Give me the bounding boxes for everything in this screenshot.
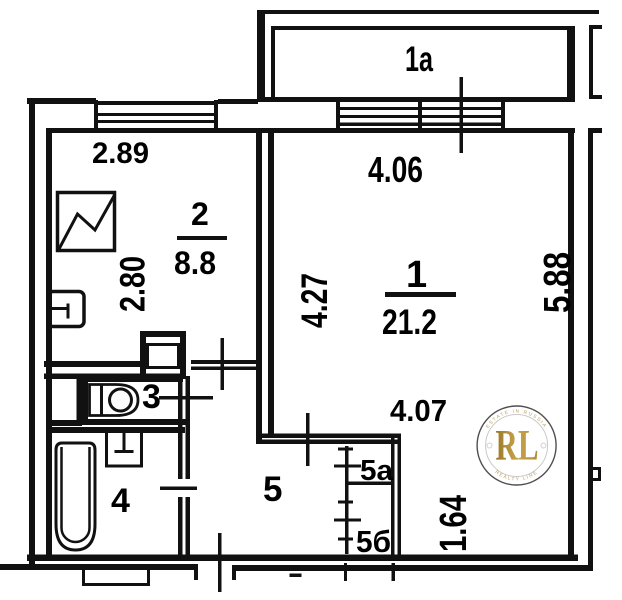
svg-text:1.64: 1.64 bbox=[433, 495, 475, 552]
svg-text:2: 2 bbox=[191, 196, 209, 232]
svg-text:4.07: 4.07 bbox=[390, 393, 447, 428]
svg-text:4.06: 4.06 bbox=[368, 149, 423, 190]
svg-text:8.8: 8.8 bbox=[174, 245, 216, 281]
svg-text:5б: 5б bbox=[356, 524, 391, 559]
svg-text:4.27: 4.27 bbox=[294, 273, 335, 328]
svg-text:5.88: 5.88 bbox=[537, 252, 579, 313]
svg-text:3: 3 bbox=[142, 378, 161, 416]
svg-text:1а: 1а bbox=[405, 40, 433, 79]
svg-text:21.2: 21.2 bbox=[382, 303, 437, 342]
svg-text:5: 5 bbox=[263, 470, 282, 509]
svg-text:1: 1 bbox=[406, 254, 427, 296]
svg-text:2.80: 2.80 bbox=[114, 256, 153, 312]
svg-text:5а: 5а bbox=[360, 455, 394, 487]
svg-text:RL: RL bbox=[496, 423, 539, 470]
svg-text:2.89: 2.89 bbox=[92, 137, 149, 170]
svg-text:4: 4 bbox=[111, 482, 130, 520]
